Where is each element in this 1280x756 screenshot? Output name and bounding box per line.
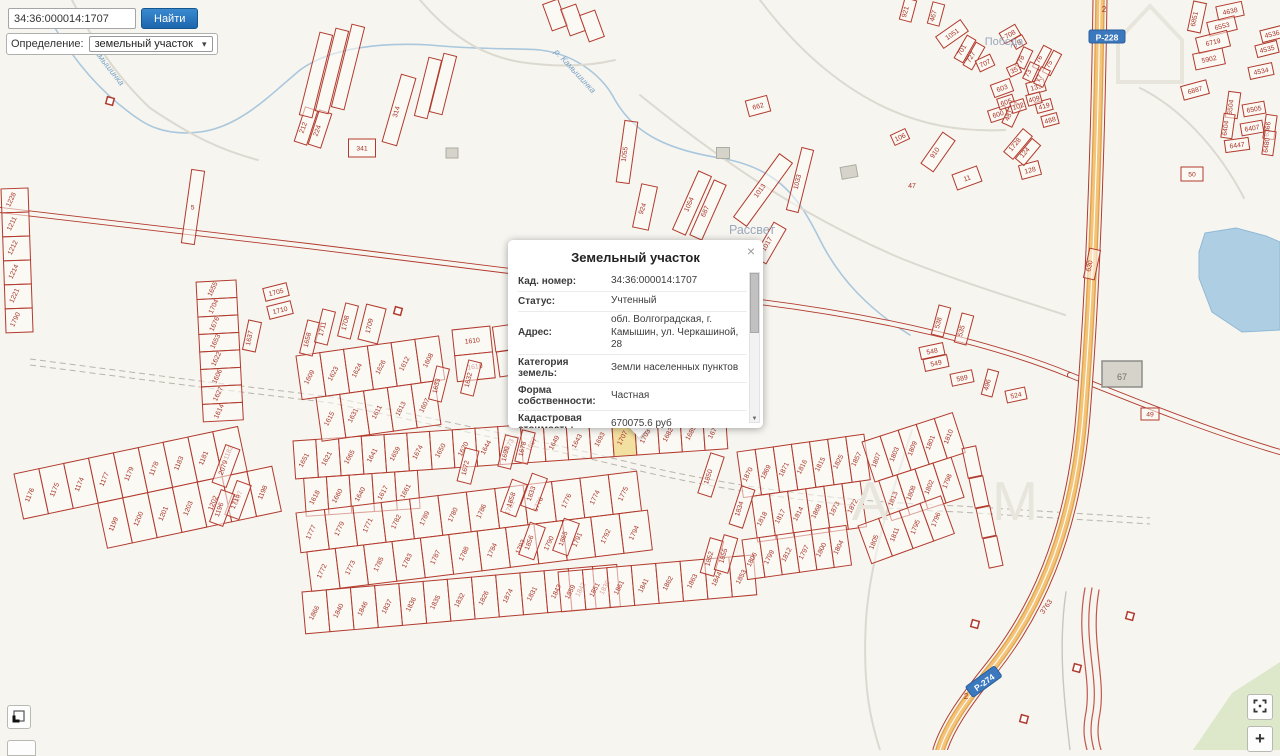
parcel-attribute-label: Кад. номер: [518, 276, 611, 288]
parcel-attribute-value: Учтенный [611, 295, 747, 308]
popup-scrollbar[interactable]: ▼ [749, 272, 760, 423]
scrollbar-thumb[interactable] [750, 273, 759, 333]
parcel-group: 49 [1141, 408, 1159, 420]
popup-rows: Кад. номер:34:36:000014:1707Статус:Учтен… [518, 272, 747, 428]
plus-icon: + [1255, 729, 1265, 749]
poi-marker[interactable] [1126, 612, 1135, 621]
road-badge: Р-228 [1089, 30, 1125, 43]
definition-select[interactable]: земельный участок ▾ [89, 36, 213, 52]
popup-row: Кад. номер:34:36:000014:1707 [518, 272, 747, 291]
building [446, 148, 458, 158]
parcel-group: 341 [349, 139, 376, 157]
parcel-attribute-label: Категория земель: [518, 357, 611, 380]
close-icon[interactable]: × [747, 244, 755, 258]
popup-title: Земельный участок [508, 250, 763, 265]
poi-marker[interactable] [394, 307, 403, 316]
map-label: 47 [908, 183, 916, 190]
partial-control[interactable] [7, 740, 36, 756]
definition-label: Определение: [11, 38, 84, 50]
parcel-attribute-label: Форма собственности: [518, 385, 611, 408]
parcel-info-popup: Земельный участок × Кад. номер:34:36:000… [508, 240, 763, 428]
map-label: А [852, 470, 889, 532]
parcel-attribute-value: 670075.6 руб [611, 418, 747, 428]
map-label: М [992, 470, 1038, 532]
definition-filter: Определение: земельный участок ▾ [6, 33, 218, 55]
cadastral-map-app: 1651162116651641165916741650162016441673… [0, 0, 1280, 750]
popup-row: Адрес:обл. Волгоградская, г. Камышин, ул… [518, 311, 747, 354]
popup-row: Кадастровая стоимость:670075.6 руб [518, 410, 747, 429]
building [717, 148, 730, 159]
search-button[interactable]: Найти [141, 8, 198, 29]
search-bar: Найти [8, 8, 198, 29]
map-label: Победа [985, 36, 1024, 48]
poi-marker[interactable] [1020, 715, 1029, 724]
parcel-group: 50 [1181, 167, 1203, 181]
map-label: 2 [1102, 5, 1107, 14]
parcel-attribute-value: 34:36:000014:1707 [611, 275, 747, 288]
parcel-attribute-value: Земли населенных пунктов [611, 362, 747, 375]
map-label: 2 [964, 692, 969, 701]
scroll-down-arrow-icon[interactable]: ▼ [750, 416, 759, 422]
parcel-number: 49 [1146, 412, 1154, 419]
overview-map-icon [11, 708, 27, 727]
overview-map-button[interactable] [7, 705, 31, 729]
popup-row: Форма собственности:Частная [518, 382, 747, 410]
popup-row: Категория земель:Земли населенных пункто… [518, 354, 747, 382]
parcel-attribute-value: обл. Волгоградская, г. Камышин, ул. Черк… [611, 314, 747, 352]
poi-marker[interactable] [971, 620, 980, 629]
parcel-attribute-value: Частная [611, 390, 747, 403]
parcel-number: 50 [1188, 172, 1196, 179]
map-label: 67 [1117, 372, 1127, 382]
definition-select-value: земельный участок [95, 38, 193, 50]
parcel-attribute-label: Кадастровая стоимость: [518, 413, 611, 429]
parcel-attribute-label: Статус: [518, 296, 611, 308]
poi-marker[interactable] [106, 97, 115, 106]
poi-marker[interactable] [1073, 664, 1082, 673]
parcel-number: 341 [356, 146, 368, 153]
fullscreen-extent-button[interactable] [1247, 694, 1273, 720]
building [840, 165, 858, 180]
popup-row: Статус:Учтенный [518, 291, 747, 311]
zoom-in-button[interactable]: + [1247, 726, 1273, 752]
cadastral-number-input[interactable] [8, 8, 136, 29]
parcel-attribute-label: Адрес: [518, 327, 611, 339]
parcel-number: 5 [191, 204, 195, 211]
fullscreen-extent-icon [1252, 698, 1268, 717]
strip-left-edge: 122812111212121412211790 [1, 188, 33, 333]
chevron-down-icon: ▾ [202, 40, 207, 49]
column-1650s: 16551704167616531622160616271614 [196, 280, 243, 422]
map-label: Рассвет [729, 223, 775, 237]
road-badge-label: Р-228 [1096, 33, 1119, 43]
